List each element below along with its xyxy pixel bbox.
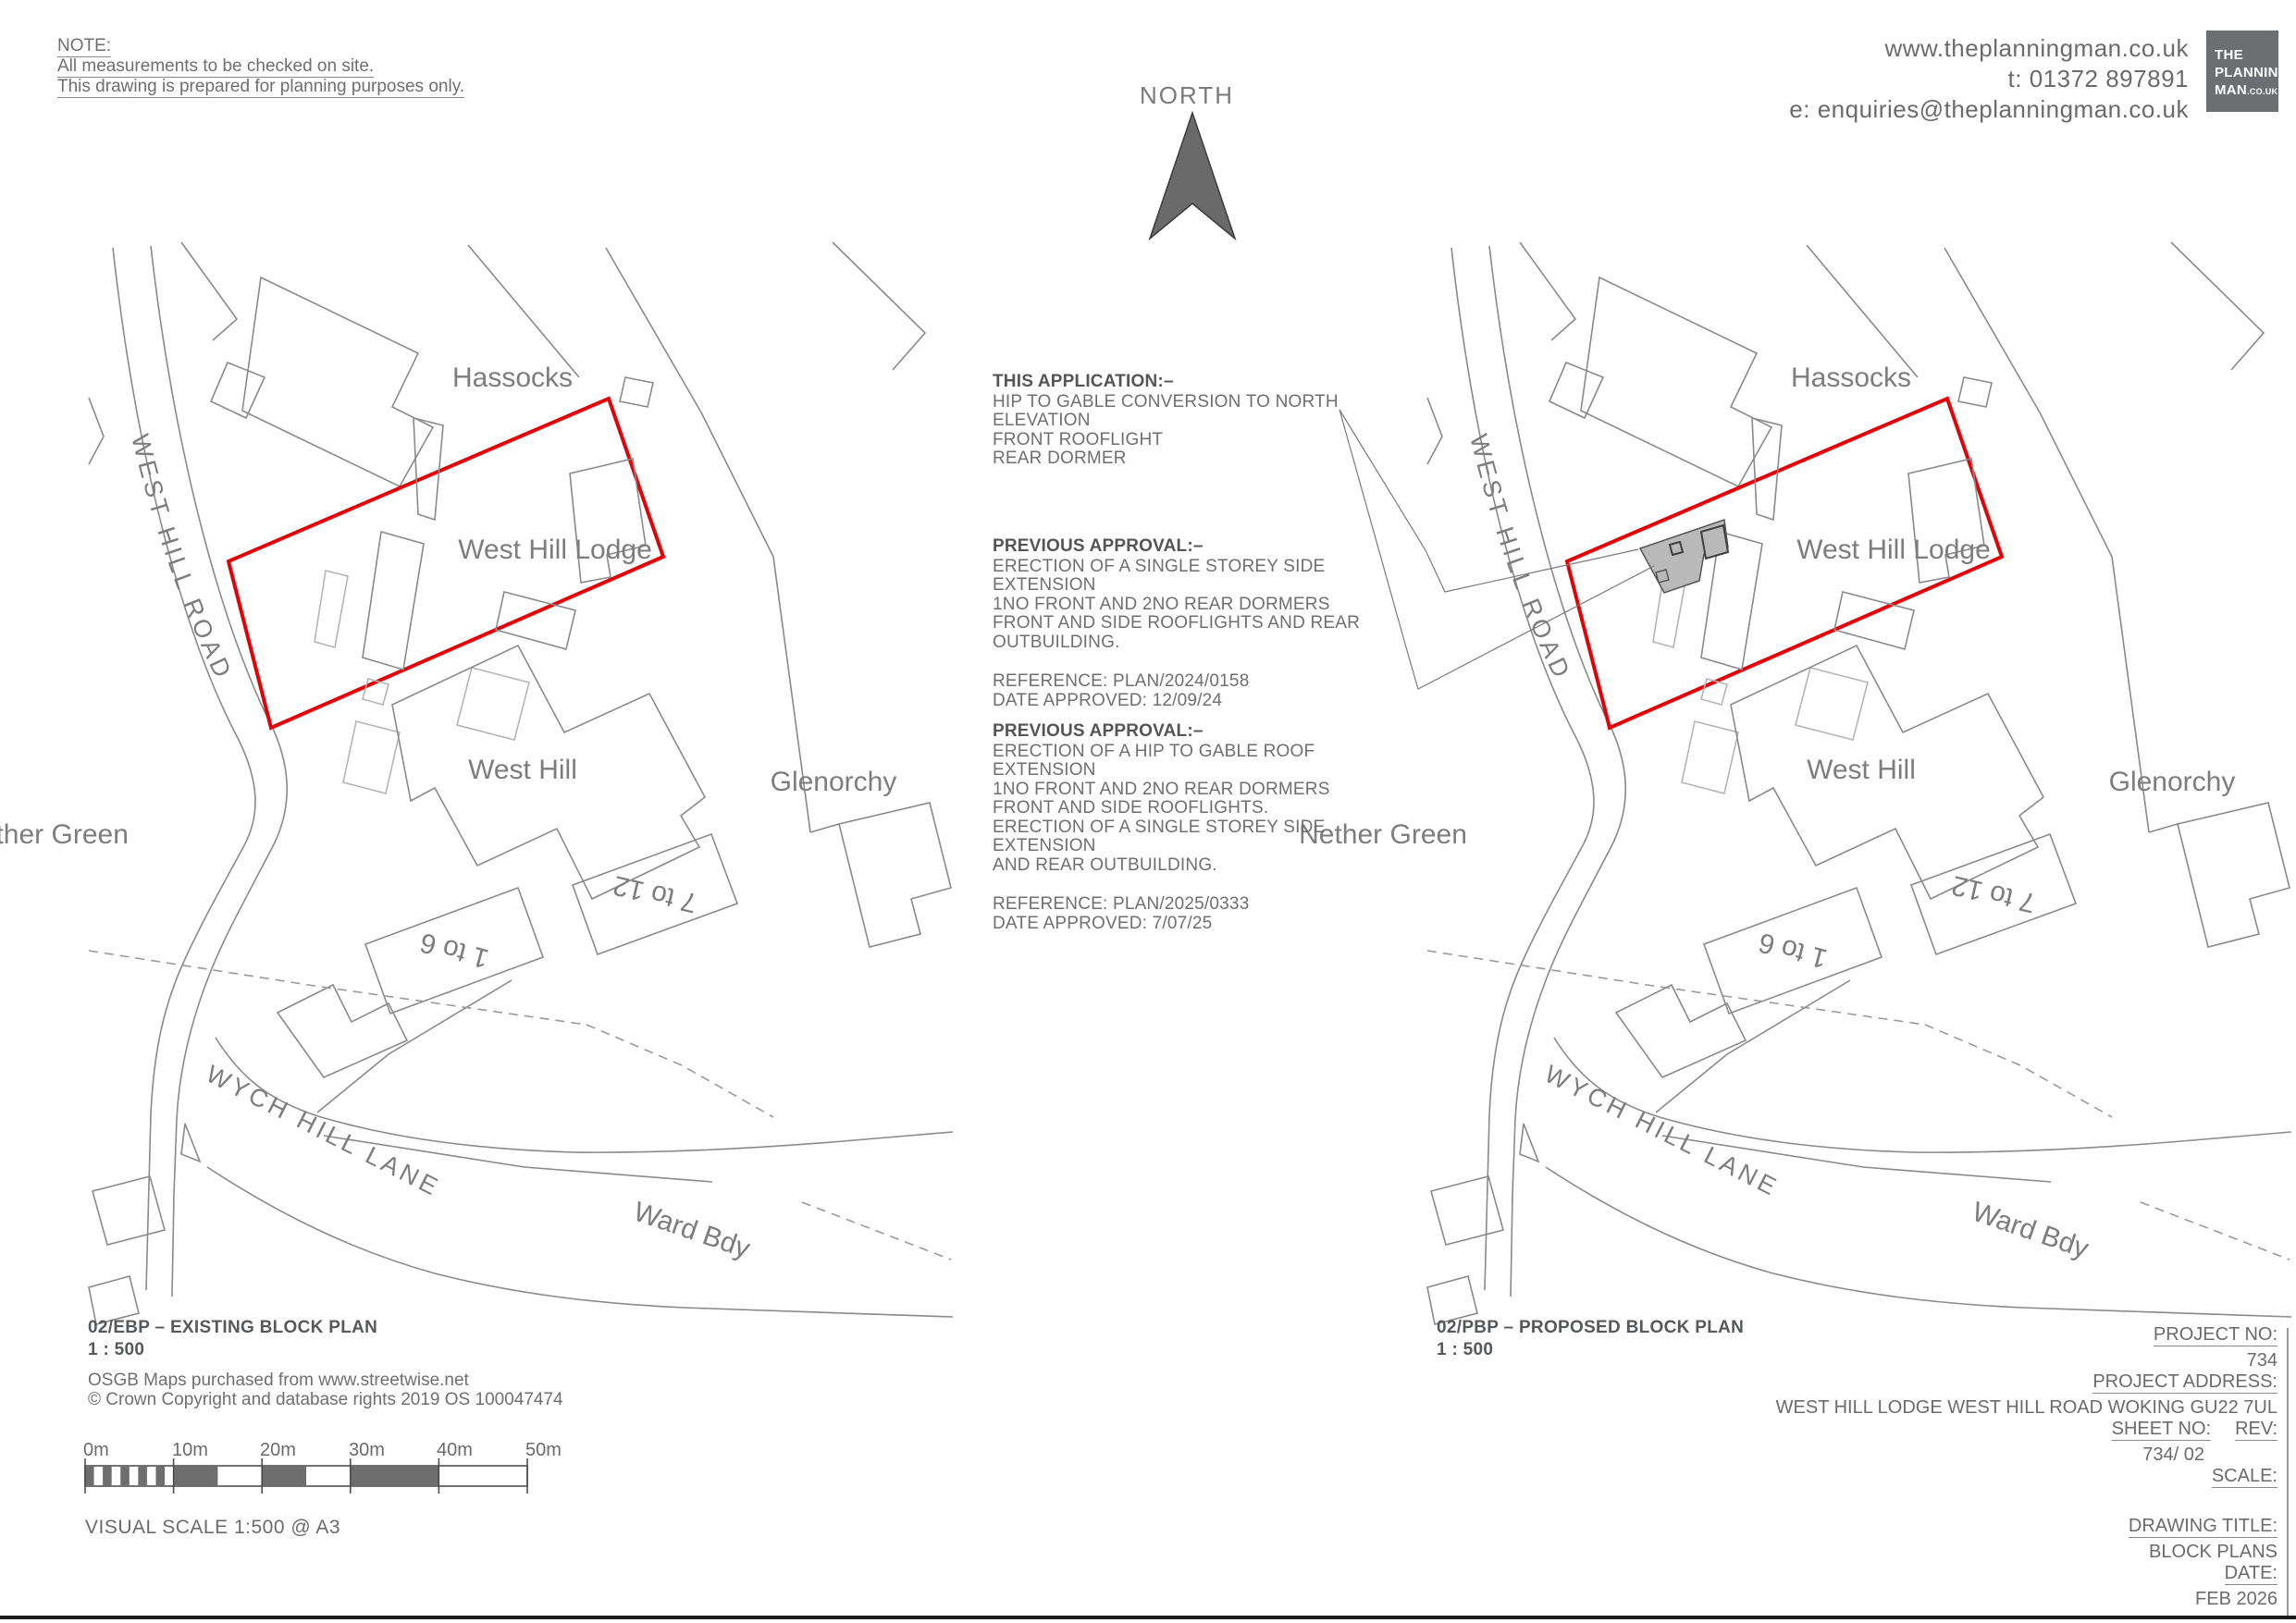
project-address-label: PROJECT ADDRESS: — [2092, 1372, 2277, 1394]
proposed-plan-caption: 02/PBP – PROPOSED BLOCK PLAN 1 : 500 — [1437, 1317, 1744, 1361]
approval-2-reference: REFERENCE: PLAN/2025/0333 — [993, 895, 1381, 915]
map-label-west-hill: West Hill — [468, 755, 577, 785]
sheet-no-label: SHEET NO: — [2112, 1420, 2211, 1441]
drawing-sheet: Hassocks West Hill Lodge West Hill Gleno… — [0, 0, 2296, 1623]
approval-1-title: PREVIOUS APPROVAL:– — [993, 537, 1381, 557]
contact-block: www.theplanningman.co.uk t: 01372 897891… — [1789, 33, 2189, 125]
logo-line-2: PLANNING — [2215, 64, 2278, 81]
approval-1-line: ERECTION OF A SINGLE STOREY SIDE EXTENSI… — [993, 558, 1381, 596]
approval-2-line: ERECTION OF A SINGLE STOREY SIDE EXTENSI… — [993, 818, 1381, 856]
existing-plan-caption: 02/EBP – EXISTING BLOCK PLAN 1 : 500 — [88, 1317, 377, 1361]
title-block: PROJECT NO: 734 PROJECT ADDRESS: WEST HI… — [1776, 1325, 2277, 1611]
application-line: HIP TO GABLE CONVERSION TO NORTH ELEVATI… — [993, 393, 1381, 431]
map-label-wych-hill-lane: WYCH HILL LANE — [202, 1060, 445, 1202]
scale-tick-10m: 10m — [172, 1440, 208, 1460]
website: www.theplanningman.co.uk — [1789, 33, 2189, 64]
map-label-west-hill: West Hill — [1807, 755, 1916, 785]
scale-tick-30m: 30m — [349, 1440, 385, 1460]
logo-line-1: THE — [2215, 46, 2278, 64]
scale-bar: 0m 10m 20m 30m 40m 50m — [83, 1440, 562, 1494]
application-line: REAR DORMER — [993, 449, 1381, 469]
proposed-building-footprint — [1640, 520, 1728, 593]
scale-tick-0m: 0m — [83, 1440, 109, 1460]
this-application-note: THIS APPLICATION:– HIP TO GABLE CONVERSI… — [993, 373, 1381, 469]
visual-scale-caption: VISUAL SCALE 1:500 @ A3 — [85, 1517, 340, 1539]
existing-plan-code: 02/EBP – EXISTING BLOCK PLAN — [88, 1317, 377, 1339]
map-label-nether-green: Nether Green — [0, 819, 129, 850]
north-label: NORTH — [1140, 81, 1234, 109]
drawing-title-value: BLOCK PLANS — [1776, 1543, 2277, 1562]
map-label-ward-bdy: Ward Bdy — [630, 1197, 754, 1265]
email: e: enquiries@theplanningman.co.uk — [1789, 94, 2189, 125]
logo-suffix: .CO.UK — [2247, 87, 2277, 96]
map-label-1-to-6: 1 to 6 — [1756, 927, 1831, 974]
planning-man-logo: THE PLANNING MAN.CO.UK — [2206, 31, 2278, 112]
map-label-west-hill-road: WEST HILL ROAD — [126, 431, 238, 684]
approval-2-title: PREVIOUS APPROVAL:– — [993, 722, 1381, 742]
scale-tick-50m: 50m — [525, 1440, 562, 1460]
approval-1-line: 1NO FRONT AND 2NO REAR DORMERS — [993, 596, 1381, 615]
proposed-block-plan-map: Hassocks West Hill Lodge West Hill Gleno… — [1299, 242, 2291, 1324]
note-block: NOTE: All measurements to be checked on … — [57, 37, 464, 98]
phone: t: 01372 897891 — [1789, 64, 2189, 94]
map-label-ward-bdy: Ward Bdy — [1969, 1197, 2092, 1265]
note-title: NOTE: — [57, 36, 111, 57]
sheet-no-value: 734/ 02 — [1776, 1445, 2204, 1465]
date-value: FEB 2026 — [1776, 1590, 2277, 1609]
proposed-plan-scale: 1 : 500 — [1437, 1339, 1744, 1361]
date-label: DATE: — [2225, 1564, 2277, 1585]
previous-approval-1-note: PREVIOUS APPROVAL:– ERECTION OF A SINGLE… — [993, 537, 1381, 710]
map-label-7-to-12: 7 to 12 — [1949, 869, 2039, 918]
existing-block-plan-map: Hassocks West Hill Lodge West Hill Gleno… — [0, 242, 953, 1324]
map-label-west-hill-road: WEST HILL ROAD — [1464, 431, 1576, 684]
logo-line-3: MAN — [2215, 82, 2247, 98]
drawing-title-label: DRAWING TITLE: — [2129, 1517, 2277, 1538]
existing-plan-scale: 1 : 500 — [88, 1339, 377, 1361]
approval-2-line: FRONT AND SIDE ROOFLIGHTS. — [993, 799, 1381, 818]
credit-line-1: OSGB Maps purchased from www.streetwise.… — [88, 1371, 563, 1390]
map-label-1-to-6: 1 to 6 — [417, 927, 492, 974]
application-title: THIS APPLICATION:– — [993, 373, 1381, 392]
proposed-plan-code: 02/PBP – PROPOSED BLOCK PLAN — [1437, 1317, 1744, 1339]
note-line-1: All measurements to be checked on site. — [57, 56, 374, 78]
previous-approval-2-note: PREVIOUS APPROVAL:– ERECTION OF A HIP TO… — [993, 722, 1381, 933]
approval-1-reference: REFERENCE: PLAN/2024/0158 — [993, 672, 1381, 692]
note-line-2: This drawing is prepared for planning pu… — [57, 77, 464, 98]
north-arrow-icon: NORTH — [1140, 81, 1235, 239]
application-line: FRONT ROOFLIGHT — [993, 431, 1381, 450]
map-label-wych-hill-lane: WYCH HILL LANE — [1540, 1060, 1784, 1202]
credit-line-2: © Crown Copyright and database rights 20… — [88, 1390, 563, 1409]
project-no-value: 734 — [1776, 1351, 2277, 1371]
map-label-hassocks: Hassocks — [1791, 363, 1911, 393]
project-address-value: WEST HILL LODGE WEST HILL ROAD WOKING GU… — [1776, 1398, 2277, 1418]
title-block-divider — [2287, 1328, 2289, 1618]
map-label-glenorchy: Glenorchy — [771, 767, 897, 797]
map-label-glenorchy: Glenorchy — [2109, 767, 2236, 797]
map-label-west-hill-lodge: West Hill Lodge — [458, 535, 652, 565]
map-label-west-hill-lodge: West Hill Lodge — [1796, 535, 1991, 565]
map-label-7-to-12: 7 to 12 — [611, 869, 700, 918]
map-label-hassocks: Hassocks — [452, 363, 573, 393]
approval-1-date: DATE APPROVED: 12/09/24 — [993, 692, 1381, 711]
sheet-bottom-border — [0, 1616, 2296, 1619]
approval-1-line: FRONT AND SIDE ROOFLIGHTS AND REAR OUTBU… — [993, 614, 1381, 652]
approval-2-date: DATE APPROVED: 7/07/25 — [993, 915, 1381, 934]
scale-tick-40m: 40m — [437, 1440, 473, 1460]
os-copyright-credit: OSGB Maps purchased from www.streetwise.… — [88, 1371, 563, 1409]
project-no-label: PROJECT NO: — [2154, 1325, 2277, 1346]
rev-label: REV: — [2235, 1420, 2277, 1441]
approval-2-line: AND REAR OUTBUILDING. — [993, 856, 1381, 876]
scale-label: SCALE: — [2212, 1467, 2277, 1488]
scale-tick-20m: 20m — [260, 1440, 296, 1460]
approval-2-line: ERECTION OF A HIP TO GABLE ROOF EXTENSIO… — [993, 743, 1381, 781]
approval-2-line: 1NO FRONT AND 2NO REAR DORMERS — [993, 781, 1381, 800]
